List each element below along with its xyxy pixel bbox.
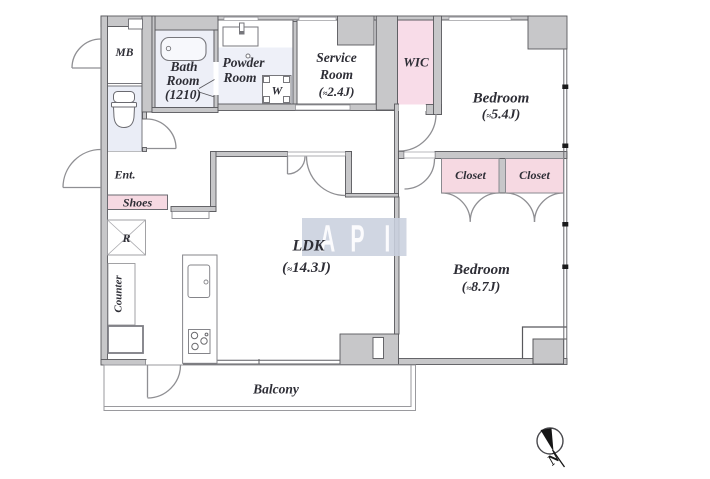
svg-text:Service: Service <box>316 50 356 65</box>
svg-text:WIC: WIC <box>403 55 429 70</box>
svg-text:Room: Room <box>319 67 353 82</box>
svg-text:Closet: Closet <box>455 168 486 182</box>
svg-text:Bedroom: Bedroom <box>472 91 530 107</box>
svg-text:LDK: LDK <box>292 238 326 255</box>
svg-text:MB: MB <box>115 47 134 59</box>
svg-text:W: W <box>272 84 284 98</box>
svg-text:Shoes: Shoes <box>123 196 153 210</box>
svg-text:(1210): (1210) <box>165 87 201 102</box>
svg-text:Closet: Closet <box>519 168 550 182</box>
svg-text:(≈5.4J): (≈5.4J) <box>482 108 521 123</box>
svg-text:Bedroom: Bedroom <box>452 262 510 278</box>
svg-text:P: P <box>350 217 364 260</box>
svg-text:Counter: Counter <box>113 275 125 313</box>
svg-text:Bath: Bath <box>169 59 197 74</box>
svg-text:I: I <box>384 217 390 260</box>
svg-text:R: R <box>121 231 130 245</box>
svg-text:Room: Room <box>222 70 256 85</box>
svg-text:(≈8.7J): (≈8.7J) <box>462 280 501 295</box>
svg-text:Powder: Powder <box>223 55 266 70</box>
svg-text:Ent.: Ent. <box>113 168 135 182</box>
svg-text:Balcony: Balcony <box>252 382 300 397</box>
svg-text:Room: Room <box>165 73 199 88</box>
